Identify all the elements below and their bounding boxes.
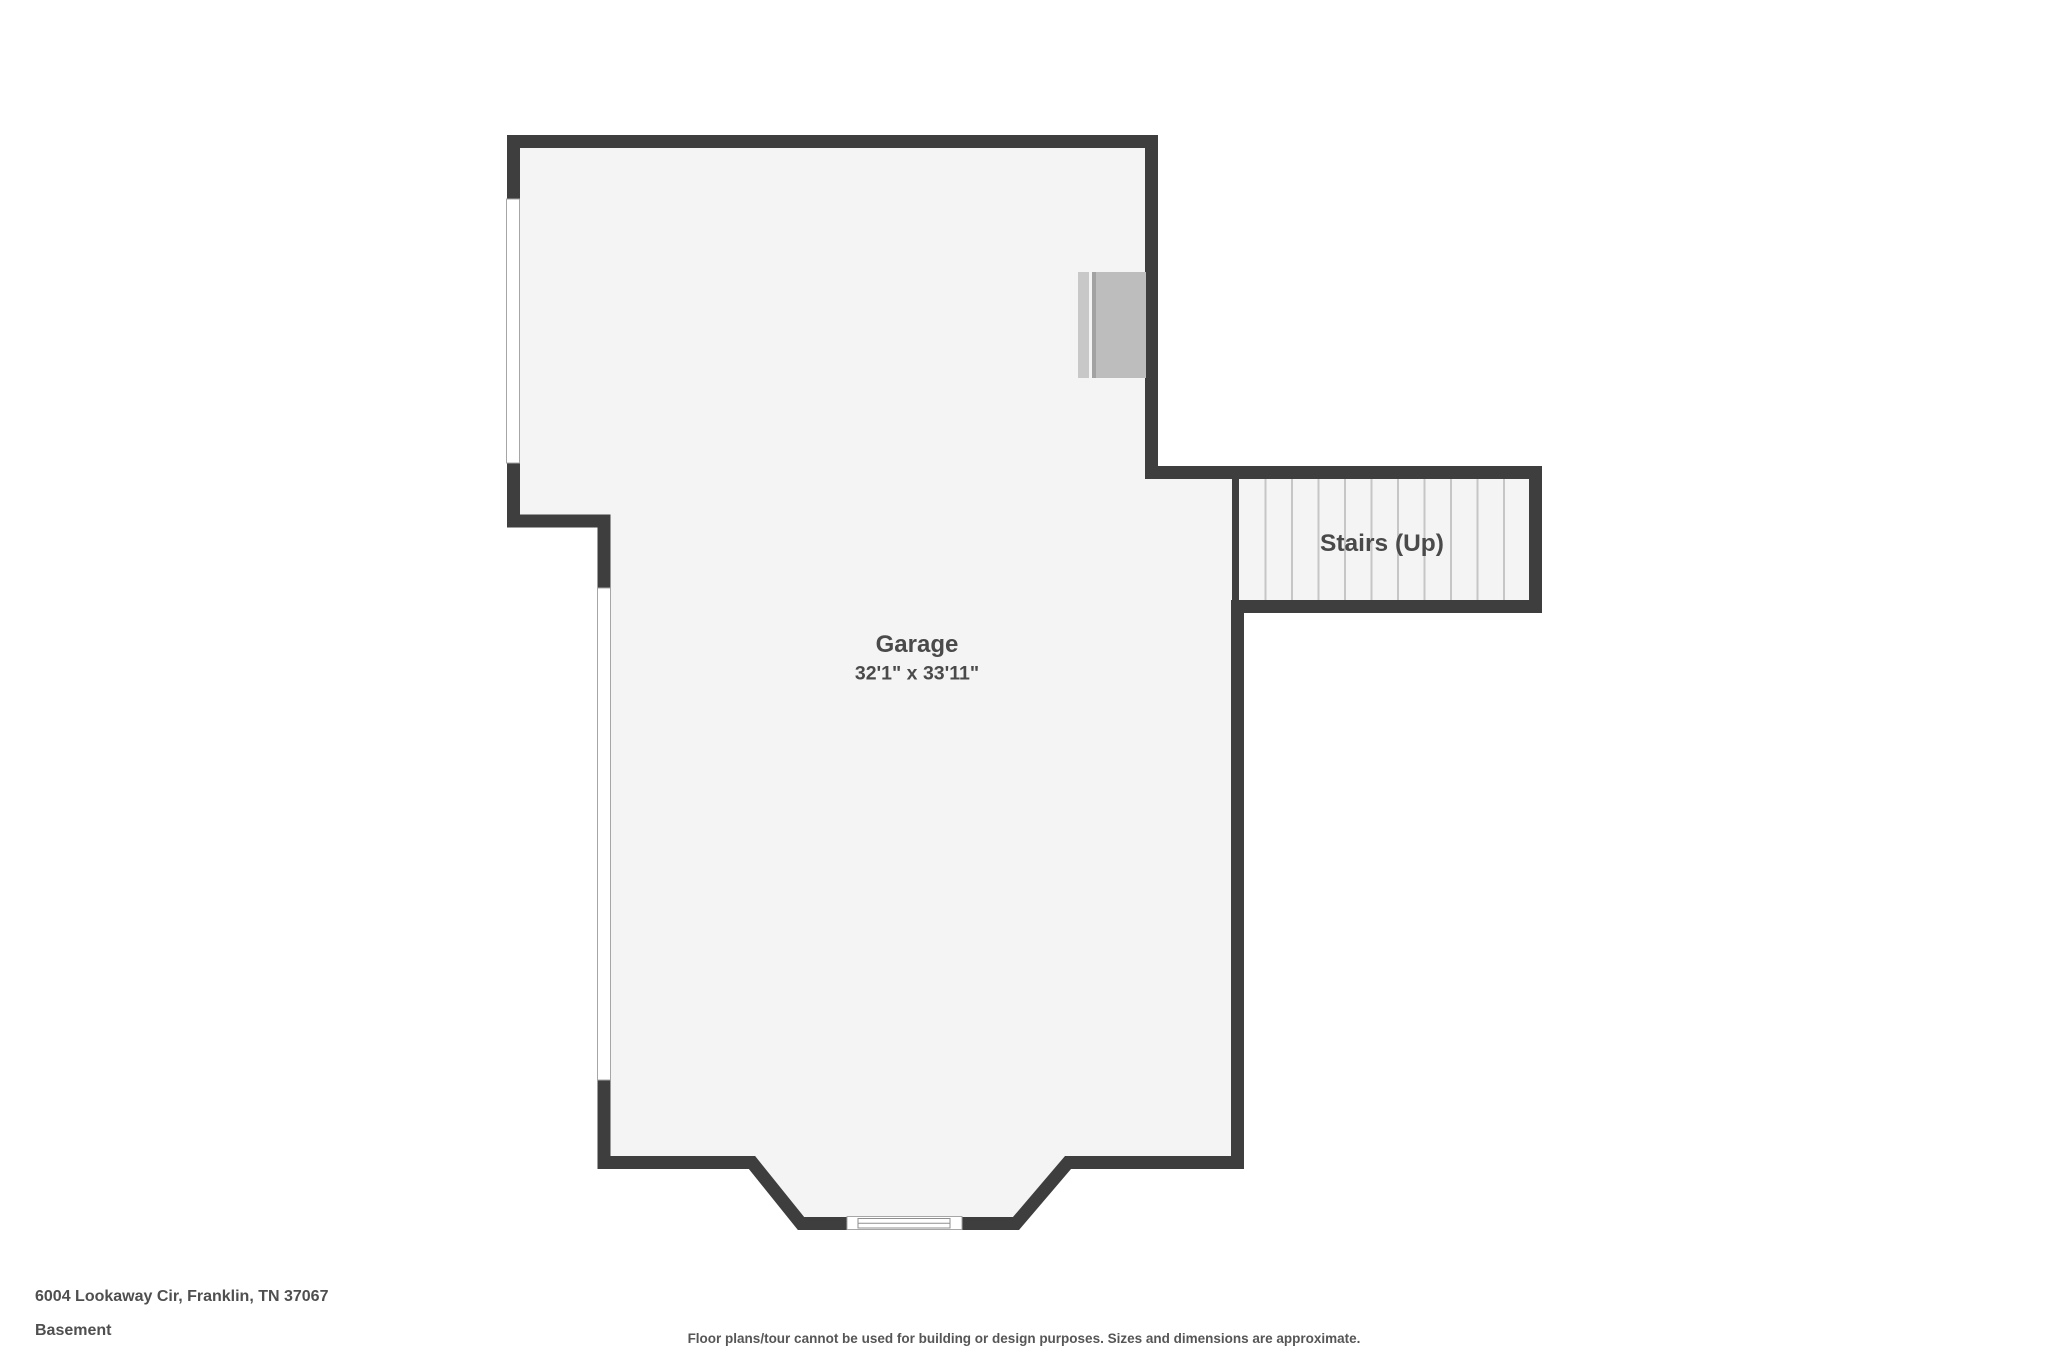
room-label-garage: Garage: [876, 631, 959, 658]
disclaimer-text: Floor plans/tour cannot be used for buil…: [0, 1331, 2048, 1346]
window-lower-left: [598, 588, 611, 1080]
floor-plan-canvas: Garage 32'1" x 33'11" Stairs (Up): [0, 0, 2048, 1365]
wall-outline: [514, 142, 1536, 1224]
utility-fixture: [1078, 272, 1146, 378]
address-text: 6004 Lookaway Cir, Franklin, TN 37067: [35, 1288, 328, 1306]
room-dimensions-garage: 32'1" x 33'11": [855, 663, 979, 685]
room-label-stairs: Stairs (Up): [1320, 530, 1444, 557]
window-upper-left: [507, 199, 520, 463]
bay-window: [847, 1217, 962, 1230]
floor-plan-page: Garage 32'1" x 33'11" Stairs (Up) 6004 L…: [0, 0, 2048, 1365]
